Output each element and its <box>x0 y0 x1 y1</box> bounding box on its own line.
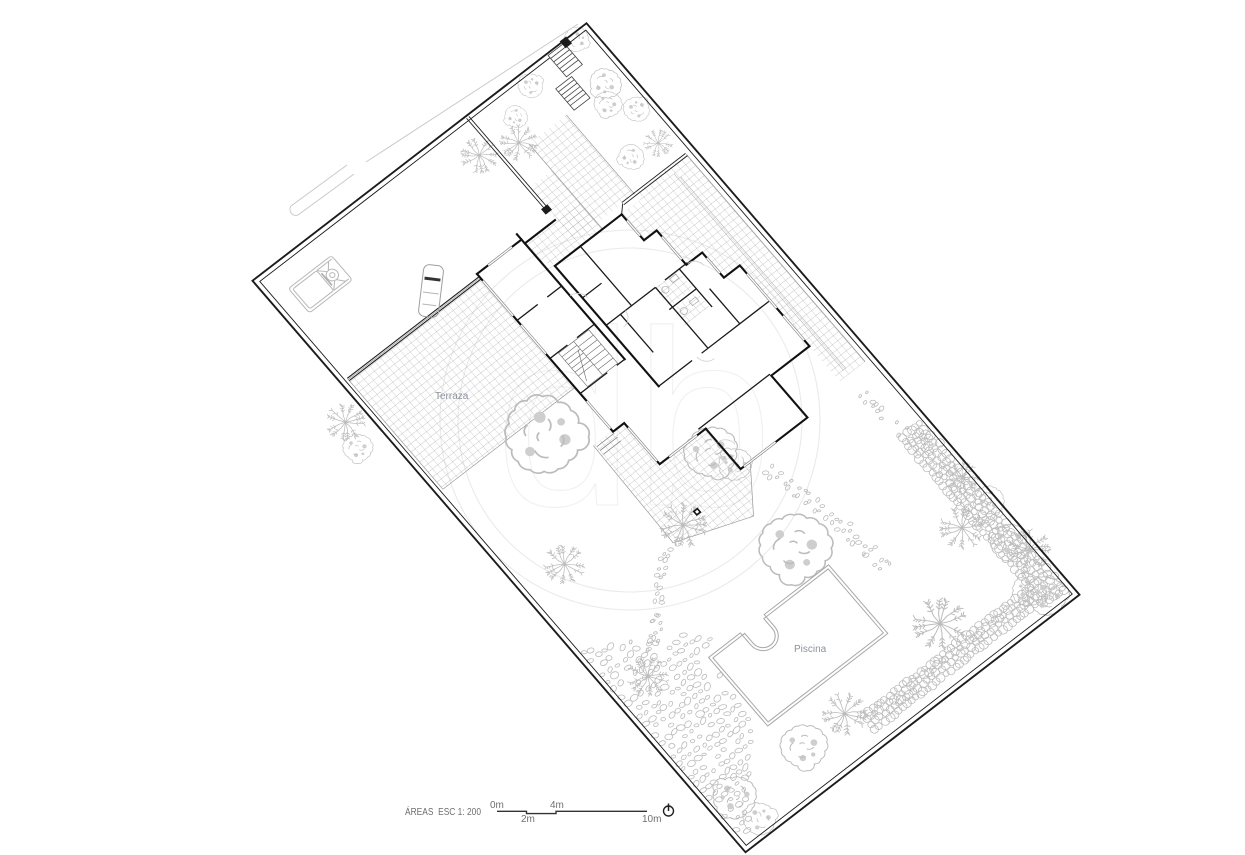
svg-text:4m: 4m <box>550 800 564 811</box>
svg-text:2m: 2m <box>521 814 535 825</box>
svg-text:Terraza: Terraza <box>435 391 469 402</box>
svg-text:ÁREAS ESC 1: 200: ÁREAS ESC 1: 200 <box>405 805 481 818</box>
svg-text:0m: 0m <box>490 800 504 811</box>
svg-text:10m: 10m <box>642 814 661 825</box>
svg-text:Piscina: Piscina <box>794 644 827 655</box>
